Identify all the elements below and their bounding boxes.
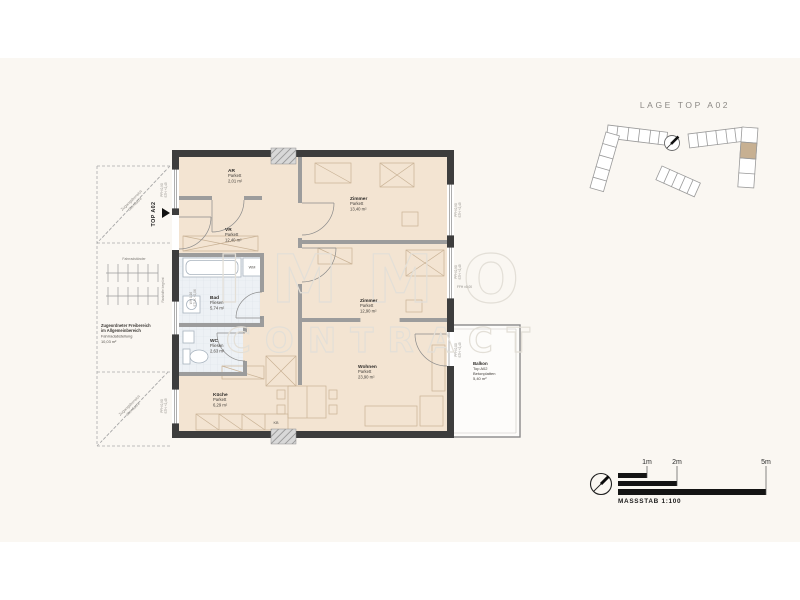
scale-caption: MASSSTAB 1:100	[618, 498, 681, 505]
svg-text:23,90 m²: 23,90 m²	[358, 374, 375, 379]
site-compass-icon	[665, 136, 680, 151]
svg-text:STH +2,45: STH +2,45	[458, 342, 462, 358]
floorplan-drawing: LAGE TOP A02	[0, 0, 800, 600]
floorplan-page: LAGE TOP A02	[0, 0, 800, 600]
scale-tick-2m: 2m	[672, 459, 682, 466]
shaft-bottom	[271, 429, 296, 444]
svg-text:10,03 m²: 10,03 m²	[101, 339, 117, 344]
svg-text:12,40 m²: 12,40 m²	[225, 237, 242, 242]
svg-text:12,90 m²: 12,90 m²	[360, 308, 377, 313]
watermark: IMMO CONTRACT	[217, 241, 549, 361]
fridge-label: KB	[273, 421, 279, 425]
svg-text:STH +2,45: STH +2,45	[164, 182, 168, 198]
watermark-line1: IMMO	[217, 241, 549, 318]
svg-text:5,74 m²: 5,74 m²	[210, 305, 225, 310]
floor-level-label: FFH ±0,00	[457, 285, 472, 289]
room-label-kueche: Küche Parkett 6,29 m²	[213, 392, 228, 407]
window-ar	[172, 168, 179, 210]
svg-text:Fahrradabstellung: Fahrradabstellung	[101, 334, 132, 339]
window-zimmer1	[447, 183, 454, 237]
wc-sink	[183, 331, 194, 343]
svg-text:2,01 m²: 2,01 m²	[228, 178, 243, 183]
toilet-tank	[183, 349, 190, 364]
site-plan-title: LAGE TOP A02	[640, 100, 730, 110]
shaft-top	[271, 148, 296, 164]
svg-text:6,29 m²: 6,29 m²	[213, 402, 228, 407]
entry-unit-label: TOP A02	[151, 202, 157, 227]
watermark-line2: CONTRACT	[226, 321, 544, 361]
window-kueche	[172, 388, 179, 425]
svg-text:im Allgemeinbereich: im Allgemeinbereich	[101, 328, 141, 333]
window-bad	[172, 300, 179, 336]
svg-text:STH +2,45: STH +2,45	[458, 264, 462, 280]
svg-text:STUK +2,06: STUK +2,06	[193, 289, 197, 307]
trellis-label: Rankhilfe begrünt	[161, 277, 165, 302]
site-plan-highlighted-unit	[740, 142, 757, 159]
svg-text:13,40 m²: 13,40 m²	[350, 206, 367, 211]
svg-text:STH +2,45: STH +2,45	[164, 398, 168, 414]
north-compass-icon	[591, 474, 612, 495]
svg-text:STH +2,45: STH +2,45	[458, 202, 462, 218]
toilet	[190, 350, 208, 363]
svg-text:5,40 m²: 5,40 m²	[473, 376, 487, 381]
bike-stand-label: Fahrradständer	[122, 257, 146, 261]
scale-tick-1m: 1m	[642, 459, 652, 466]
svg-text:2,63 m²: 2,63 m²	[210, 348, 225, 353]
scale-tick-5m: 5m	[761, 459, 771, 466]
